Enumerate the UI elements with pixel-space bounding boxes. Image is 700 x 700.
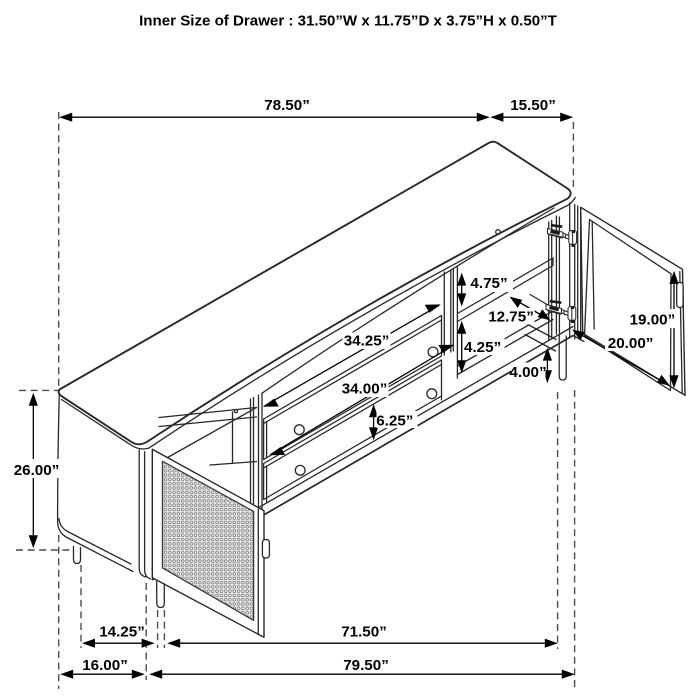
svg-text:19.00”: 19.00”	[630, 312, 676, 329]
svg-text:15.50”: 15.50”	[510, 97, 556, 114]
svg-text:Inner Size of Drawer : 31.50”W: Inner Size of Drawer : 31.50”W x 11.75”D…	[139, 13, 558, 30]
svg-text:16.00”: 16.00”	[82, 657, 128, 674]
svg-text:4.25”: 4.25”	[464, 339, 501, 356]
svg-text:4.00”: 4.00”	[509, 364, 546, 381]
svg-text:26.00”: 26.00”	[14, 462, 60, 479]
svg-text:78.50”: 78.50”	[264, 97, 310, 114]
svg-text:4.75”: 4.75”	[470, 275, 507, 292]
svg-text:71.50”: 71.50”	[341, 624, 387, 641]
svg-text:79.50”: 79.50”	[343, 657, 389, 674]
svg-text:34.25”: 34.25”	[344, 333, 390, 350]
svg-text:14.25”: 14.25”	[99, 624, 145, 641]
svg-text:34.00”: 34.00”	[342, 381, 388, 398]
svg-text:20.00”: 20.00”	[608, 335, 654, 352]
svg-text:6.25”: 6.25”	[376, 413, 413, 430]
svg-text:12.75”: 12.75”	[488, 309, 534, 326]
